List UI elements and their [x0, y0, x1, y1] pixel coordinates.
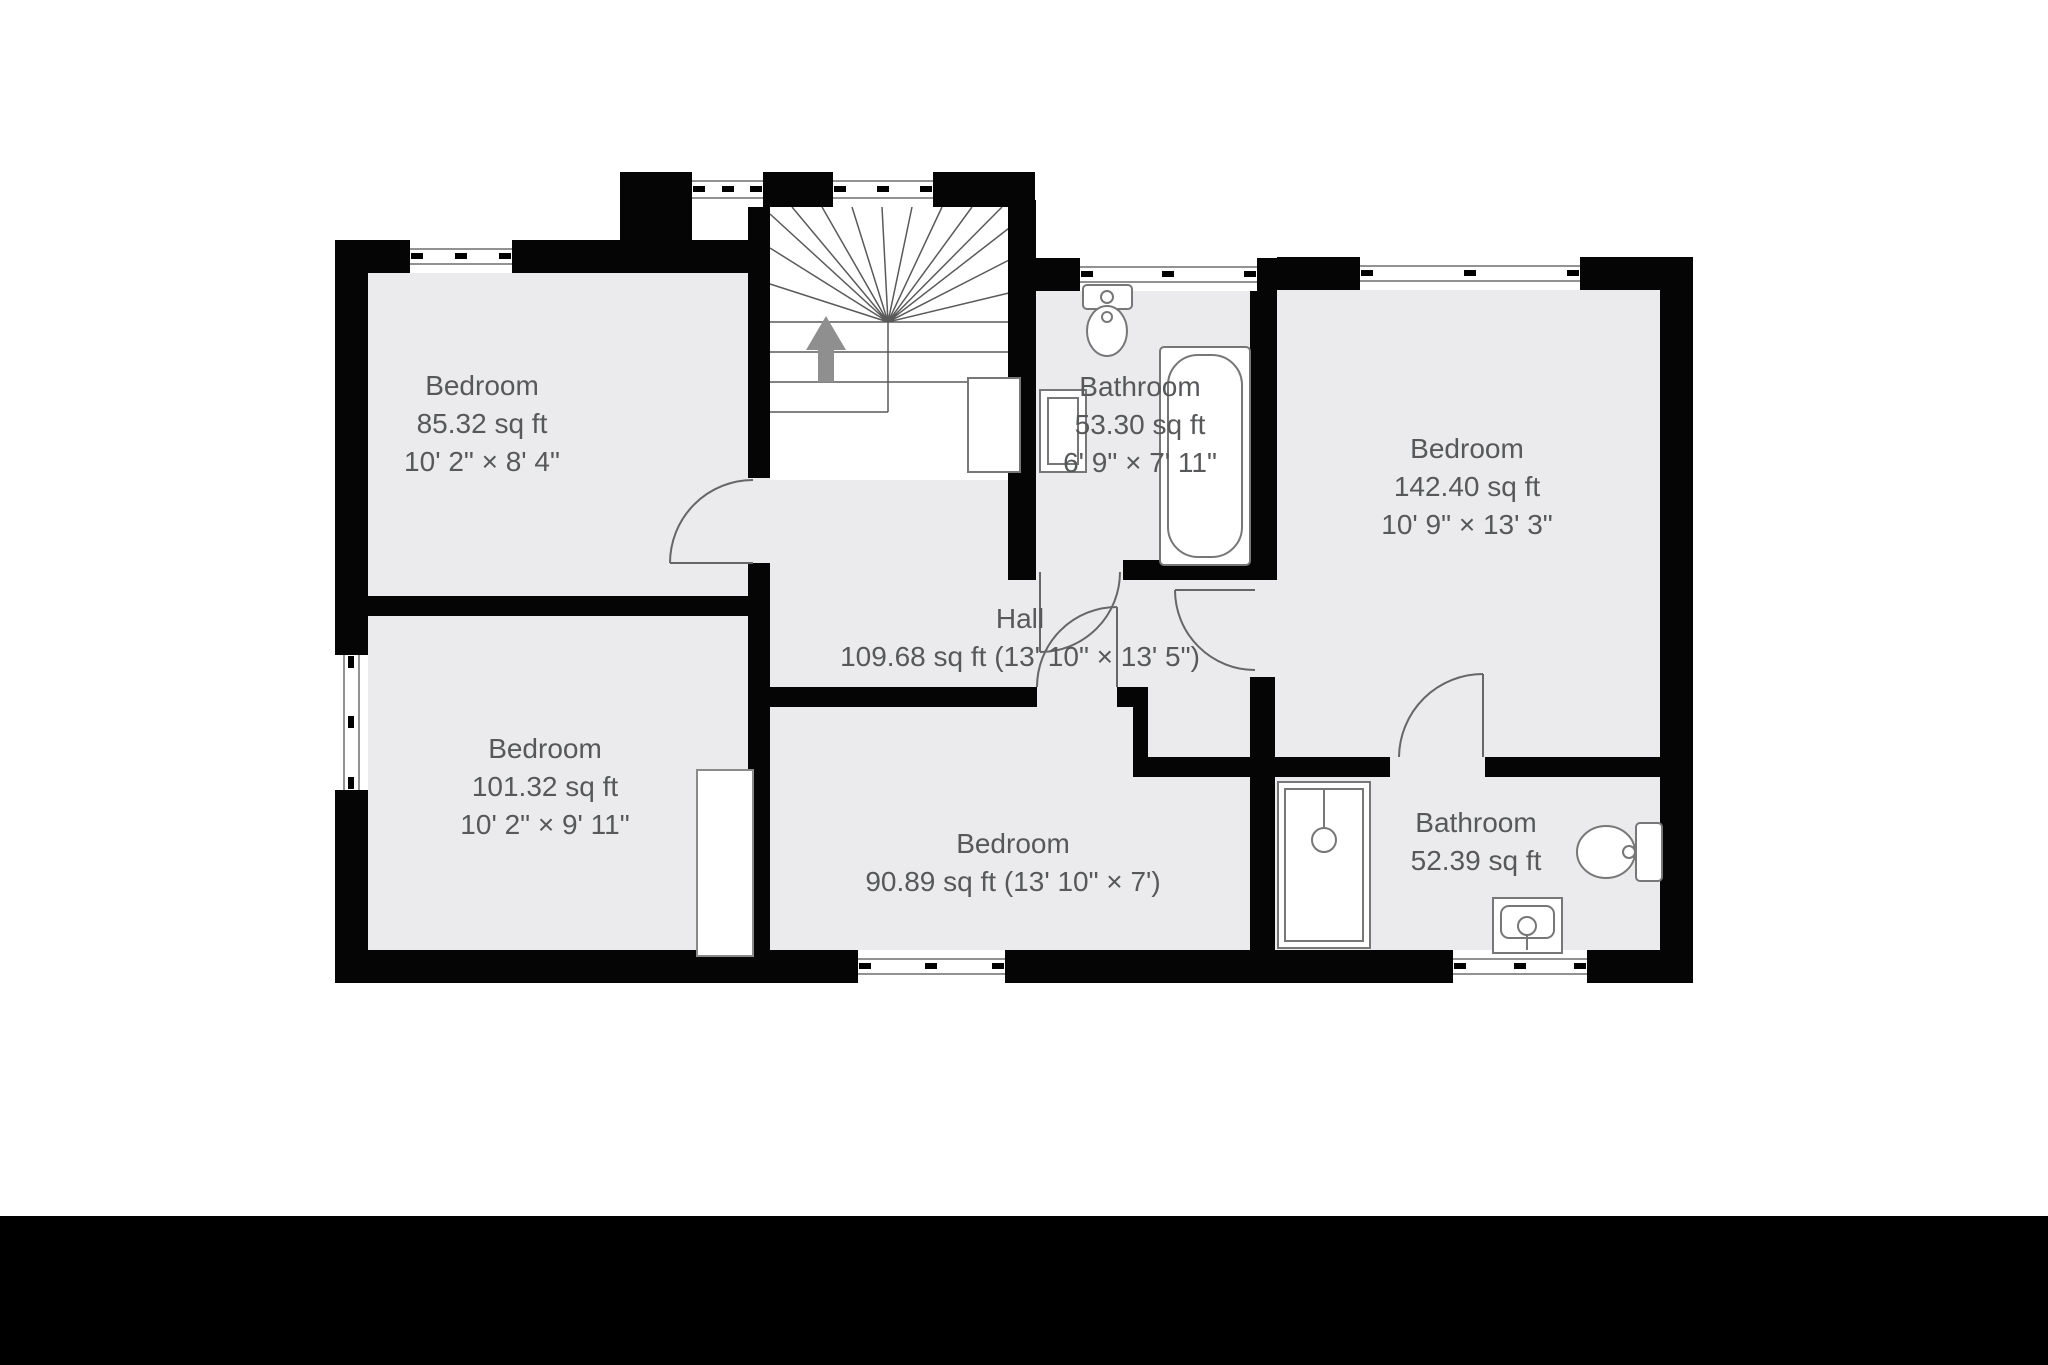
room-name: Bedroom — [460, 730, 629, 768]
room-dims: 6' 9" × 7' 11" — [1063, 444, 1217, 482]
room-name: Bathroom — [1411, 804, 1542, 842]
window-icon — [1453, 950, 1587, 983]
room-label-hall: Hall 109.68 sq ft (13' 10" × 13' 5") — [840, 600, 1200, 676]
room-name: Bedroom — [1381, 430, 1552, 468]
room-label-bedroom-1: Bedroom 85.32 sq ft 10' 2" × 8' 4" — [404, 367, 560, 481]
room-area: 101.32 sq ft — [460, 768, 629, 806]
floorplan-page: Bedroom 85.32 sq ft 10' 2" × 8' 4" Bathr… — [0, 0, 2048, 1365]
window-icon — [335, 655, 368, 790]
room-name: Bedroom — [404, 367, 560, 405]
room-area: 53.30 sq ft — [1063, 406, 1217, 444]
toilet-icon — [1577, 823, 1662, 881]
window-icon — [692, 172, 763, 207]
room-area: 85.32 sq ft — [404, 405, 560, 443]
sink-icon — [1493, 898, 1562, 953]
room-area: 90.89 sq ft (13' 10" × 7') — [865, 863, 1160, 901]
room-dims: 10' 9" × 13' 3" — [1381, 506, 1552, 544]
room-label-bathroom-2: Bathroom 52.39 sq ft — [1411, 804, 1542, 880]
footer-bar: Church St Sawtry Huntingdon PE28 5SZ App… — [0, 1216, 2048, 1365]
room-label-bedroom-3: Bedroom 101.32 sq ft 10' 2" × 9' 11" — [460, 730, 629, 844]
room-label-bedroom-4: Bedroom 90.89 sq ft (13' 10" × 7') — [865, 825, 1160, 901]
room-name: Hall — [840, 600, 1200, 638]
room-area: 142.40 sq ft — [1381, 468, 1552, 506]
window-icon — [1360, 257, 1580, 290]
room-label-bathroom-1: Bathroom 53.30 sq ft 6' 9" × 7' 11" — [1063, 368, 1217, 482]
room-name: Bathroom — [1063, 368, 1217, 406]
wardrobe — [697, 770, 753, 956]
window-icon — [858, 950, 1005, 983]
room-area: 52.39 sq ft — [1411, 842, 1542, 880]
window-icon — [833, 172, 933, 207]
window-icon — [410, 240, 512, 273]
room-dims: 10' 2" × 9' 11" — [460, 806, 629, 844]
room-name: Bedroom — [865, 825, 1160, 863]
room-dims: 10' 2" × 8' 4" — [404, 443, 560, 481]
shower-icon — [1278, 782, 1370, 948]
room-label-bedroom-2: Bedroom 142.40 sq ft 10' 9" × 13' 3" — [1381, 430, 1552, 544]
floor-plan — [0, 0, 2048, 1365]
room-area: 109.68 sq ft (13' 10" × 13' 5") — [840, 638, 1200, 676]
